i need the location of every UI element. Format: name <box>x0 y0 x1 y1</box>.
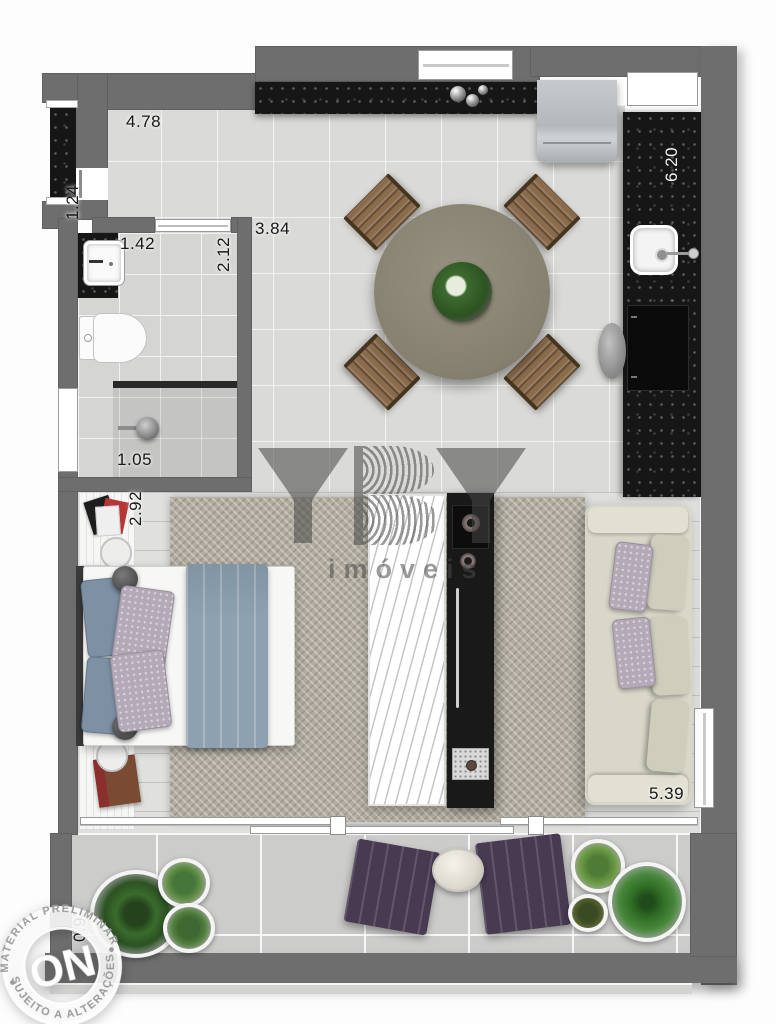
tv-screen-edge <box>456 588 459 708</box>
brand-letter-y <box>258 448 348 543</box>
dim-bathroom-depth: 2.12 <box>214 237 234 272</box>
plant-pot-agave <box>608 862 686 942</box>
lounge-chair <box>343 838 440 935</box>
sofa <box>585 505 692 805</box>
kitchen-stool <box>598 323 626 379</box>
sofa-arm-top <box>588 507 688 533</box>
brand-letter-b <box>354 446 438 545</box>
sofa-window-frame <box>703 713 706 805</box>
lounge-chair <box>475 833 572 935</box>
planter-sill-top <box>46 100 78 108</box>
table-centerpiece-plant <box>432 262 492 322</box>
dim-bathroom-door: 1.42 <box>120 234 155 254</box>
bathroom-sink <box>84 241 124 285</box>
sofa-pillow <box>611 616 656 690</box>
brand-letter-b-top <box>354 446 434 494</box>
floor-plan: 4.78 1.24 1.42 2.12 3.84 6.20 1.05 2.92 … <box>0 0 776 1024</box>
toilet-flush-button <box>84 334 92 342</box>
bathroom-top-wall-left <box>92 217 155 233</box>
balcony-door-leaf <box>80 817 337 825</box>
decor-knob <box>466 760 477 771</box>
bottom-wall <box>45 953 737 983</box>
cooktop-knob <box>631 376 637 378</box>
brand-letter-y <box>436 448 526 543</box>
kitchen-sink <box>630 225 678 275</box>
shower-window <box>58 388 78 472</box>
balcony-right-wall-block <box>690 833 737 957</box>
fridge-door-seam <box>543 142 611 144</box>
dim-sofa-wall: 5.39 <box>649 784 684 804</box>
left-corner-fin-top <box>42 73 78 103</box>
plant-pot-small <box>163 903 215 953</box>
brand-letter-b-bottom <box>354 495 438 545</box>
cooktop-knob <box>631 316 637 318</box>
brand-watermark: imóveis <box>258 440 528 595</box>
dining-table <box>374 204 550 380</box>
fridge <box>537 80 617 163</box>
decor-tray <box>452 748 489 780</box>
plant-pot-small <box>158 858 210 908</box>
bed-pillow-patterned <box>109 649 172 733</box>
sofa-window <box>694 708 714 808</box>
dim-top-wall: 4.78 <box>126 112 161 132</box>
balcony-sliding-door <box>80 816 698 834</box>
sofa-back-cushion <box>646 698 690 773</box>
balcony-door-handle <box>528 816 544 835</box>
kitchen-window <box>418 50 513 80</box>
shower-head <box>136 417 159 440</box>
kitchen-window-frame <box>423 64 509 67</box>
top-right-window <box>627 72 698 106</box>
kitchen-faucet-base <box>688 248 699 259</box>
pouf-table <box>432 848 484 892</box>
bathroom-sliding-door <box>155 219 231 232</box>
dim-kitchen-wall: 6.20 <box>662 147 682 182</box>
bed-blanket <box>186 564 268 748</box>
decor-sphere <box>450 86 466 102</box>
sofa-back-cushion <box>649 616 691 696</box>
shower-partition <box>113 381 237 388</box>
stamp-center-text: ON <box>24 936 100 1000</box>
cooktop <box>627 305 689 391</box>
dim-bedroom: 2.92 <box>126 491 146 526</box>
side-table-lamp <box>100 537 132 569</box>
bathroom-right-wall <box>237 217 252 490</box>
bathroom-faucet <box>89 260 103 263</box>
kitchen-faucet <box>655 248 669 262</box>
bathroom-drain <box>109 262 113 266</box>
brand-suffix: imóveis <box>328 554 485 585</box>
dim-living-opening: 3.84 <box>255 219 290 239</box>
sofa-back-cushion <box>646 534 689 611</box>
toilet <box>79 313 149 363</box>
bathroom-bottom-wall <box>58 477 252 492</box>
toilet-bowl <box>93 313 147 363</box>
balcony-door-handle <box>330 816 346 835</box>
dim-entry: 1.24 <box>63 185 83 220</box>
dim-shower: 1.05 <box>117 450 152 470</box>
magazine <box>95 505 121 537</box>
bathroom-door-track <box>158 225 228 227</box>
brand-letter-b-bar <box>354 446 363 545</box>
decor-sphere <box>466 94 479 107</box>
left-wall-bedroom <box>58 488 78 835</box>
decor-sphere <box>478 85 488 95</box>
kitchen-counter-top <box>255 82 537 114</box>
plant-pot-small <box>568 894 608 932</box>
balcony-door-leaf <box>250 826 514 834</box>
